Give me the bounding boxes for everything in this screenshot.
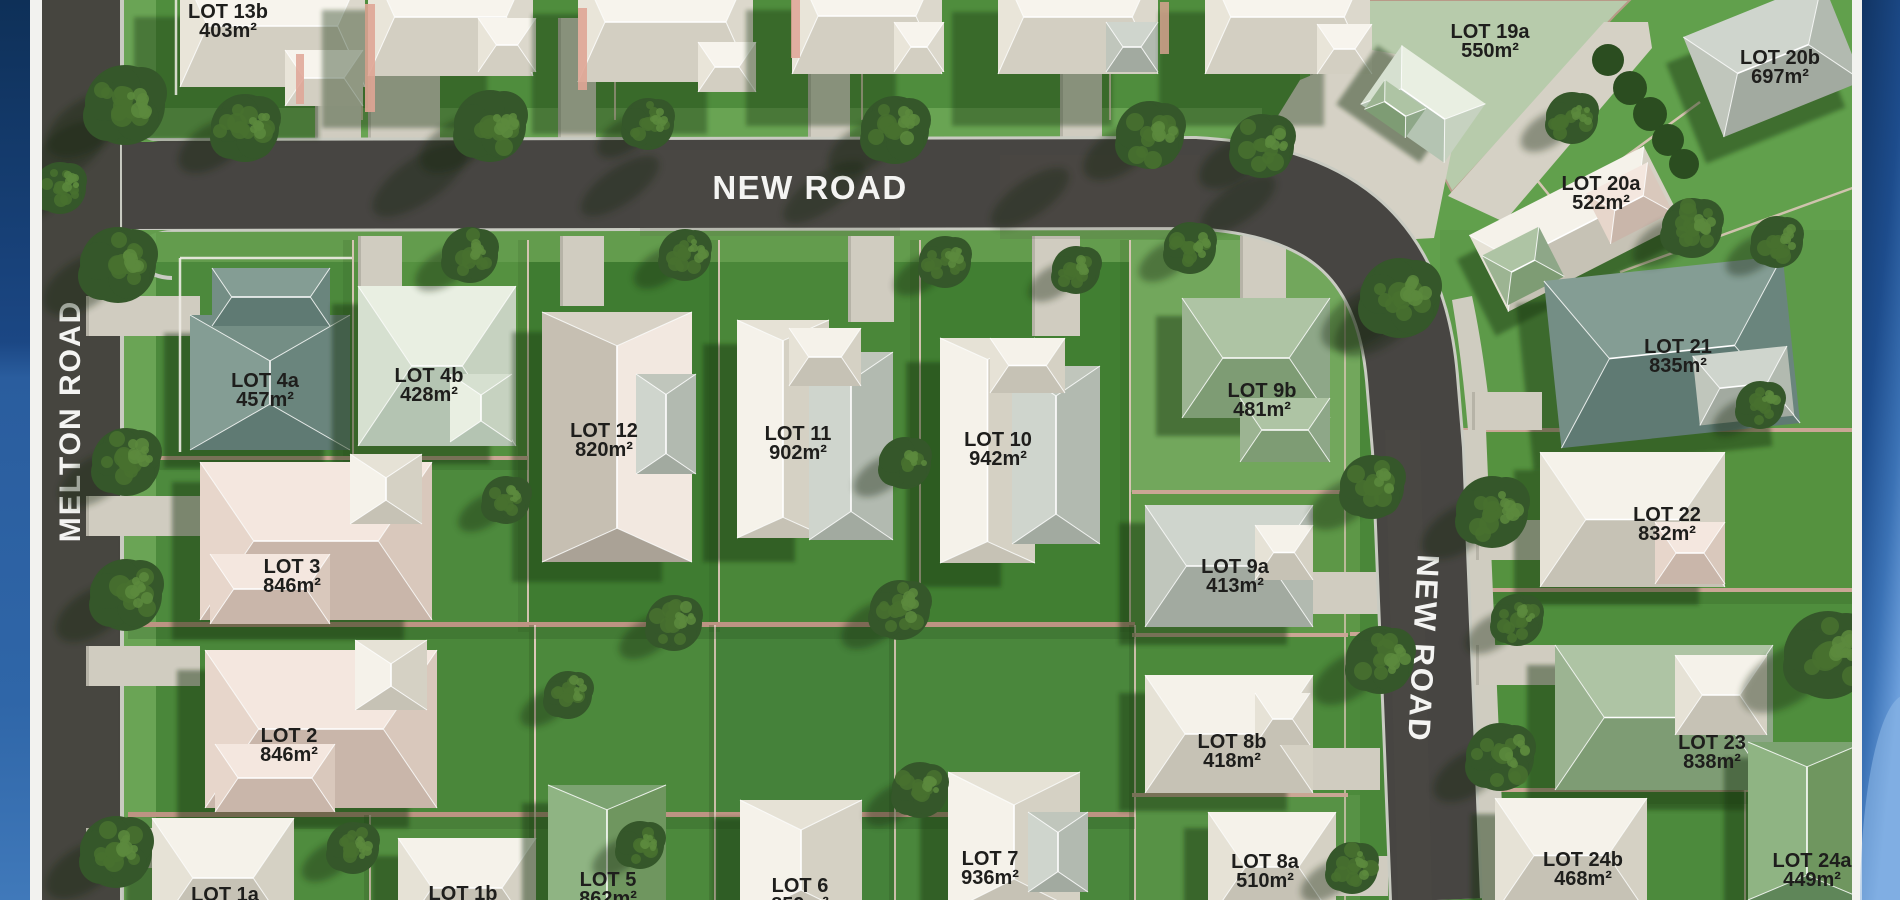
svg-text:838m²: 838m² bbox=[1683, 751, 1741, 773]
svg-text:697m²: 697m² bbox=[1751, 66, 1809, 88]
svg-text:449m²: 449m² bbox=[1783, 869, 1841, 891]
svg-text:418m²: 418m² bbox=[1203, 750, 1261, 772]
svg-text:NEW ROAD: NEW ROAD bbox=[712, 169, 907, 206]
svg-text:942m²: 942m² bbox=[969, 448, 1027, 470]
svg-text:846m²: 846m² bbox=[260, 744, 318, 766]
svg-text:550m²: 550m² bbox=[1461, 40, 1519, 62]
svg-text:403m²: 403m² bbox=[199, 20, 257, 42]
svg-text:862m²: 862m² bbox=[579, 888, 637, 900]
svg-text:859m²: 859m² bbox=[771, 894, 829, 900]
svg-text:936m²: 936m² bbox=[961, 867, 1019, 889]
svg-text:413m²: 413m² bbox=[1206, 575, 1264, 597]
svg-text:522m²: 522m² bbox=[1572, 192, 1630, 214]
svg-text:902m²: 902m² bbox=[769, 442, 827, 464]
svg-text:LOT 1b: LOT 1b bbox=[429, 883, 498, 900]
svg-text:832m²: 832m² bbox=[1638, 523, 1696, 545]
svg-text:468m²: 468m² bbox=[1554, 868, 1612, 890]
svg-text:LOT 1a: LOT 1a bbox=[191, 884, 260, 900]
svg-text:457m²: 457m² bbox=[236, 389, 294, 411]
svg-text:820m²: 820m² bbox=[575, 439, 633, 461]
svg-text:846m²: 846m² bbox=[263, 575, 321, 597]
svg-text:428m²: 428m² bbox=[400, 384, 458, 406]
svg-text:835m²: 835m² bbox=[1649, 355, 1707, 377]
svg-text:510m²: 510m² bbox=[1236, 870, 1294, 892]
svg-text:481m²: 481m² bbox=[1233, 399, 1291, 421]
